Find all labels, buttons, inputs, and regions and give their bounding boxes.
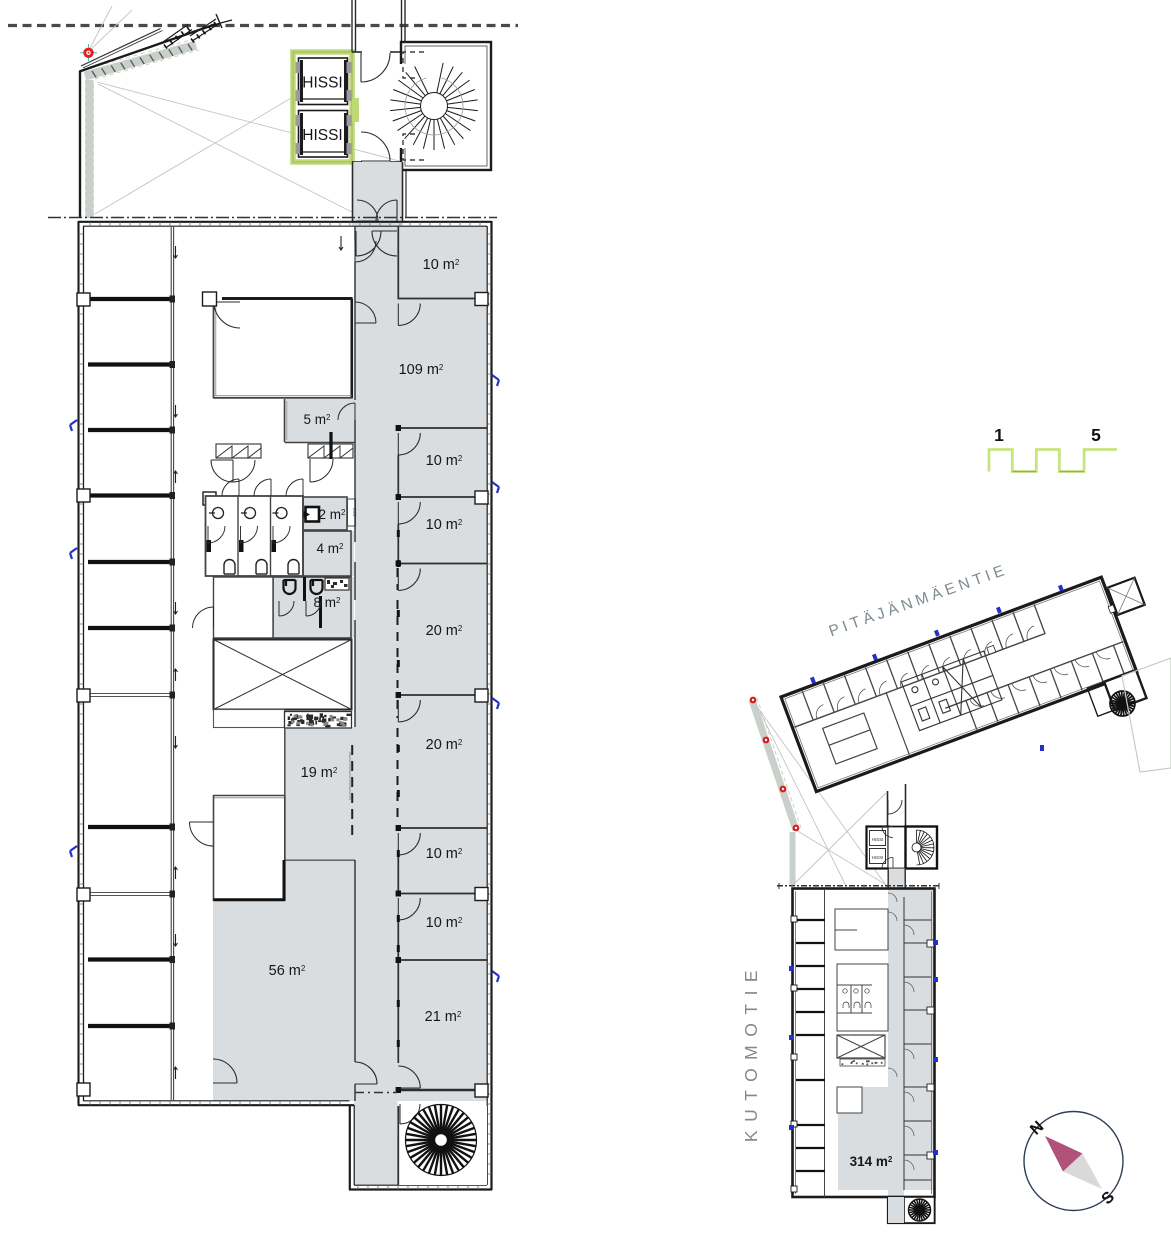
svg-text:HISSI: HISSI [872, 837, 884, 842]
svg-text:21 m2: 21 m2 [425, 1009, 462, 1025]
svg-text:HISSI: HISSI [302, 127, 342, 144]
svg-text:10 m2: 10 m2 [423, 257, 460, 273]
svg-text:19 m2: 19 m2 [301, 765, 338, 781]
svg-text:10 m2: 10 m2 [426, 453, 463, 469]
svg-text:HISSI: HISSI [872, 855, 884, 860]
svg-text:10 m2: 10 m2 [426, 517, 463, 533]
svg-text:KUTOMOTIE: KUTOMOTIE [741, 962, 761, 1142]
svg-text:56 m2: 56 m2 [269, 963, 306, 979]
svg-text:5: 5 [1091, 425, 1101, 445]
svg-text:109 m2: 109 m2 [399, 362, 444, 378]
svg-text:20 m2: 20 m2 [426, 737, 463, 753]
svg-text:10 m2: 10 m2 [426, 915, 463, 931]
svg-text:314 m2: 314 m2 [850, 1154, 893, 1169]
svg-text:1: 1 [994, 425, 1004, 445]
svg-text:HISSI: HISSI [302, 75, 342, 92]
svg-text:10 m2: 10 m2 [426, 846, 463, 862]
svg-text:20 m2: 20 m2 [426, 623, 463, 639]
